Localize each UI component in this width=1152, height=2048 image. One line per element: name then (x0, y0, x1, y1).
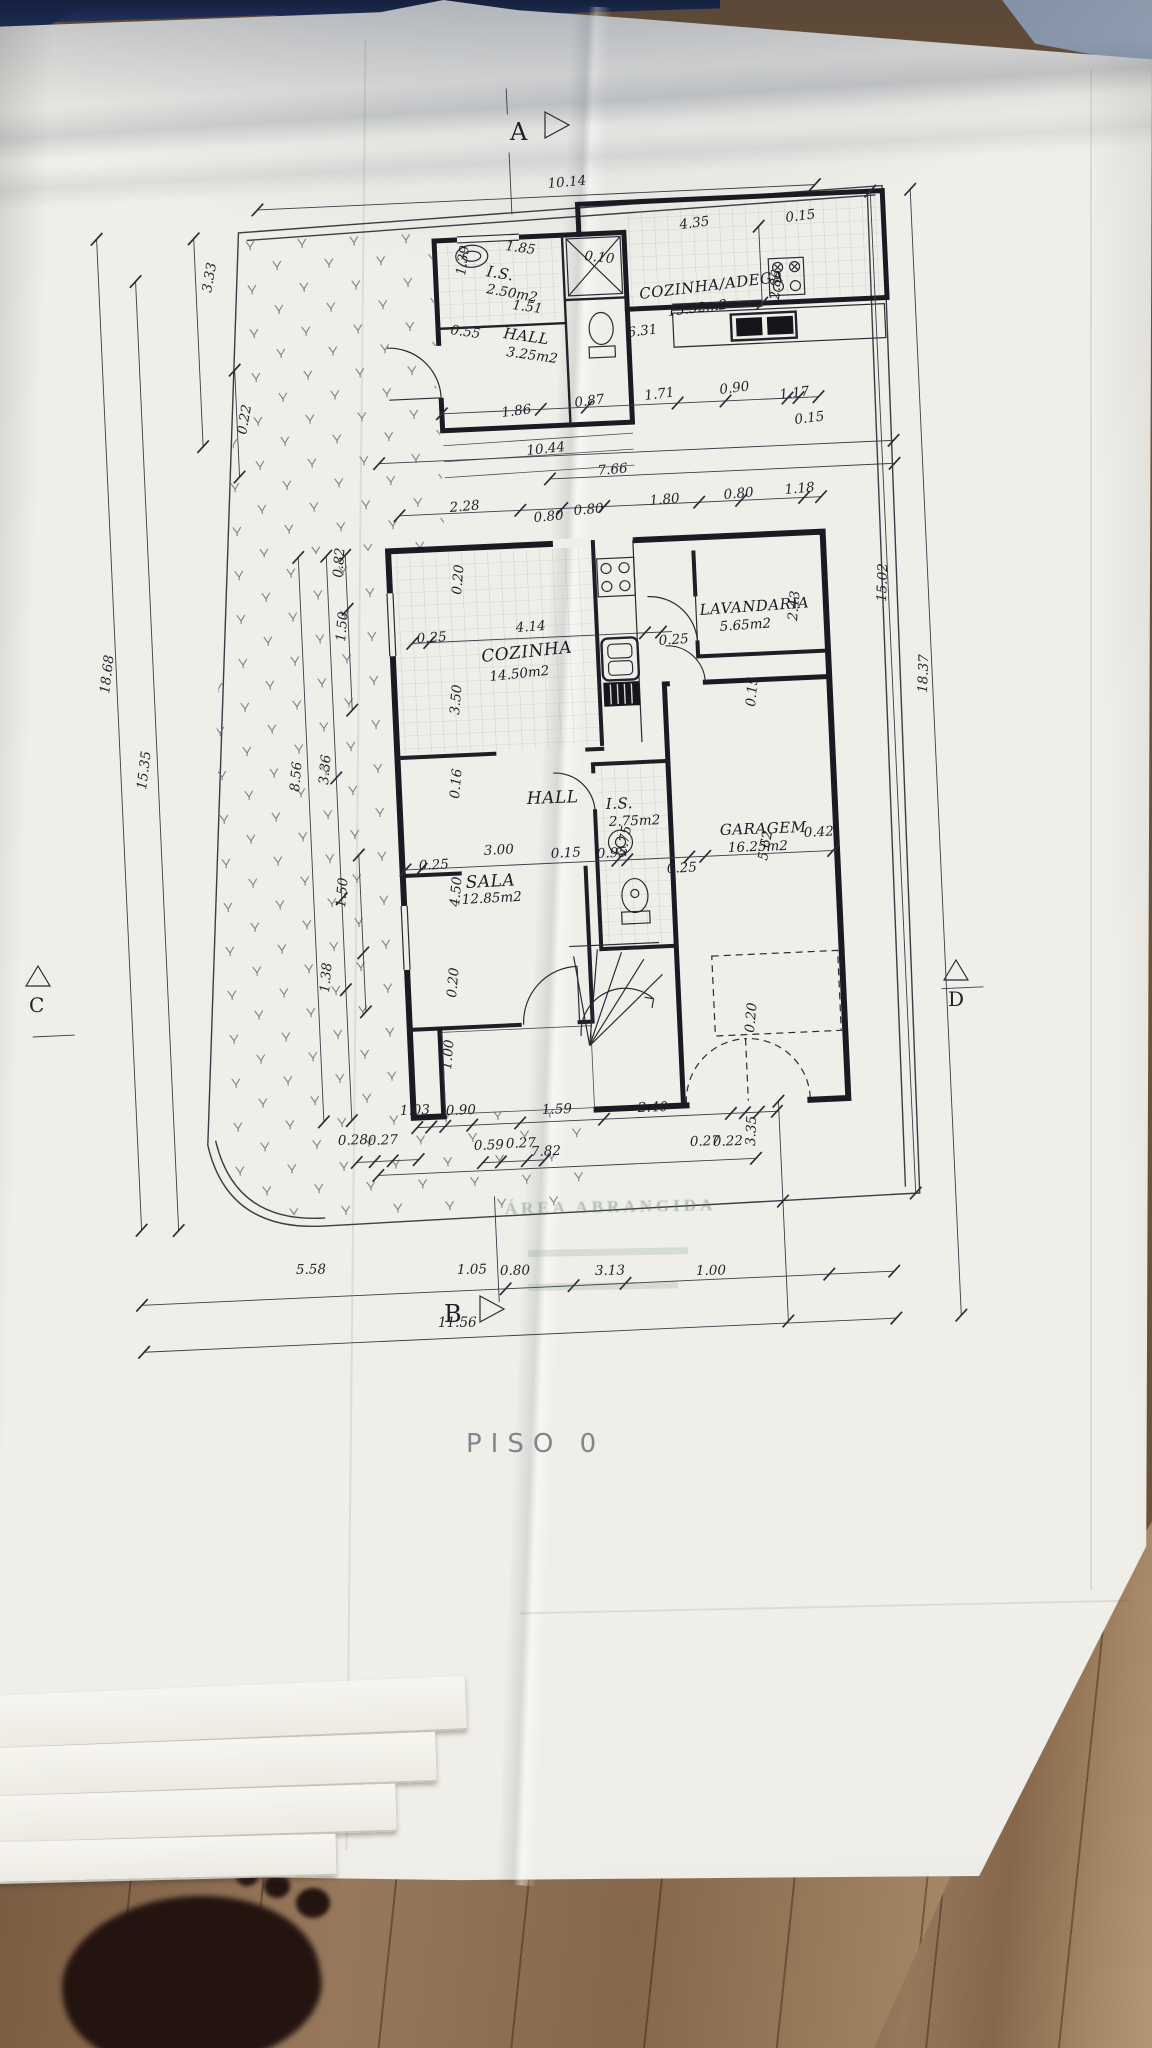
dim-label: 0.90 (719, 378, 751, 398)
room-name: HALL (525, 787, 578, 809)
section-a-line (506, 89, 512, 215)
toilet-icon (588, 312, 613, 345)
dim-label: 18.37 (915, 654, 932, 694)
dim-label: 0.80 (573, 500, 605, 519)
floor-title: PISO 0 (466, 1429, 605, 1459)
dim-label: 0.15 (550, 844, 581, 862)
dim-label: 5.58 (296, 1261, 327, 1278)
section-arrow-icon (480, 1296, 504, 1322)
dim-label: 0.15 (743, 676, 762, 707)
dim-label: 10.14 (547, 173, 587, 192)
dim-label: 3.35 (743, 1116, 760, 1147)
dim-label: 1.71 (644, 384, 676, 404)
dim-label: 8.56 (287, 761, 306, 793)
faded-stamp-line (528, 1281, 678, 1291)
dim-label: 3.33 (199, 261, 220, 293)
sink-bowl (608, 660, 633, 675)
room-area: 12.85m2 (461, 889, 522, 908)
section-marker-d: D (948, 987, 964, 1011)
dimension-line (194, 239, 203, 447)
room-name: GARAGEM (720, 818, 807, 839)
dimension-line (144, 1318, 896, 1352)
dim-label: 4.14 (514, 618, 546, 636)
photo-of-floor-plan: 10.140.101.851.391.510.554.350.152.866.3… (0, 0, 1152, 2048)
dim-label: 0.25 (418, 856, 449, 874)
dim-label: 0.20 (449, 564, 468, 596)
dimension-line (97, 239, 142, 1230)
faded-stamp-line (528, 1247, 688, 1257)
dim-label: 0.55 (449, 322, 481, 342)
dimension-line (778, 1101, 788, 1321)
cabinet-dark (603, 681, 640, 707)
dim-label: 0.80 (723, 484, 755, 503)
dimension-line (870, 191, 915, 1193)
sink-bowl (767, 316, 794, 335)
dim-label: 7.66 (597, 460, 629, 479)
dim-label: 0.59 (474, 1137, 505, 1154)
plan-geometry (0, 69, 999, 1363)
dim-label: 15.35 (134, 750, 155, 790)
dim-label: 0.80 (500, 1262, 531, 1279)
dim-label: 0.27 (368, 1132, 399, 1149)
garagem-walls (664, 676, 848, 1105)
dim-label: 0.16 (447, 768, 466, 800)
toilet-tank (589, 346, 615, 358)
stove-burners (601, 562, 630, 591)
room-area: 2.75m2 (608, 812, 661, 830)
room-name: I.S. (605, 794, 634, 813)
sink-bowl (736, 317, 763, 336)
dim-label: 3.00 (483, 841, 514, 859)
dim-label: 1.00 (696, 1262, 727, 1279)
dim-label: 1.18 (784, 479, 816, 498)
dim-label: 3.13 (595, 1262, 625, 1279)
dim-label: 0.42 (803, 823, 834, 841)
grass-area (212, 222, 445, 560)
dim-label: 0.82 (330, 547, 349, 578)
dim-label: 1.38 (317, 962, 336, 994)
section-triangle-icon (944, 960, 968, 980)
dim-label: 0.20 (444, 967, 463, 999)
dim-label: 0.25 (666, 859, 697, 877)
dim-label: 0.20 (742, 1002, 761, 1034)
dim-label: 18.68 (97, 654, 118, 695)
dim-label: 1.86 (501, 401, 533, 421)
dim-label: 3.36 (316, 754, 335, 786)
shower-cross (566, 237, 623, 296)
dashed-outline (712, 950, 841, 1036)
dim-label: 1.59 (542, 1101, 573, 1118)
section-marker-a: A (509, 118, 528, 146)
dim-label: 0.80 (533, 507, 565, 526)
dim-label: 1.03 (400, 1102, 431, 1119)
room-area: 3.25m2 (505, 344, 558, 367)
dim-label: 10.44 (526, 439, 566, 459)
dim-label: 0.90 (446, 1102, 477, 1119)
dim-label: 0.95 (596, 844, 627, 862)
dim-label: 1.00 (439, 1039, 458, 1071)
dim-label: 1.80 (649, 490, 681, 509)
garage-door-swing (684, 1036, 811, 1104)
dim-label: 2.28 (448, 497, 481, 516)
stacked-sheet-edge (0, 1834, 336, 1884)
dim-label: 2.40 (637, 1099, 669, 1116)
dim-label: 0.28 (338, 1132, 369, 1149)
dim-label: 15.02 (874, 563, 891, 602)
section-triangle-icon (26, 966, 50, 986)
room-area: 16.25m2 (728, 838, 789, 856)
room-area: 5.65m2 (719, 615, 771, 635)
dim-label: 0.15 (794, 408, 826, 428)
dim-label: 7.82 (531, 1143, 562, 1160)
dim-label: 0.10 (584, 248, 616, 267)
stove-icon (597, 557, 636, 597)
section-marker-c: C (29, 993, 44, 1017)
dim-label: 0.87 (574, 391, 606, 411)
section-c-line (33, 1035, 75, 1037)
dim-label: 0.22 (713, 1133, 744, 1150)
dim-label: 1.50 (333, 611, 352, 643)
dim-label: 1.05 (457, 1261, 487, 1278)
dim-label: 1.17 (779, 383, 811, 403)
faded-stamp-text: ÁREA ABRANGIDA (505, 1195, 717, 1218)
dim-label: 0.25 (416, 629, 447, 647)
front-door-arc (521, 966, 579, 1024)
dim-label: 0.25 (658, 631, 689, 649)
dim-label: 1.50 (333, 877, 352, 909)
stairs (569, 942, 665, 1046)
dim-label: 3.50 (447, 684, 466, 716)
b-total-dimension: 11.56 (438, 1315, 477, 1331)
sink-bowl (608, 643, 633, 658)
section-arrow-icon (545, 112, 569, 138)
dimension-line (379, 440, 893, 463)
dim-label: 6.31 (627, 321, 659, 341)
